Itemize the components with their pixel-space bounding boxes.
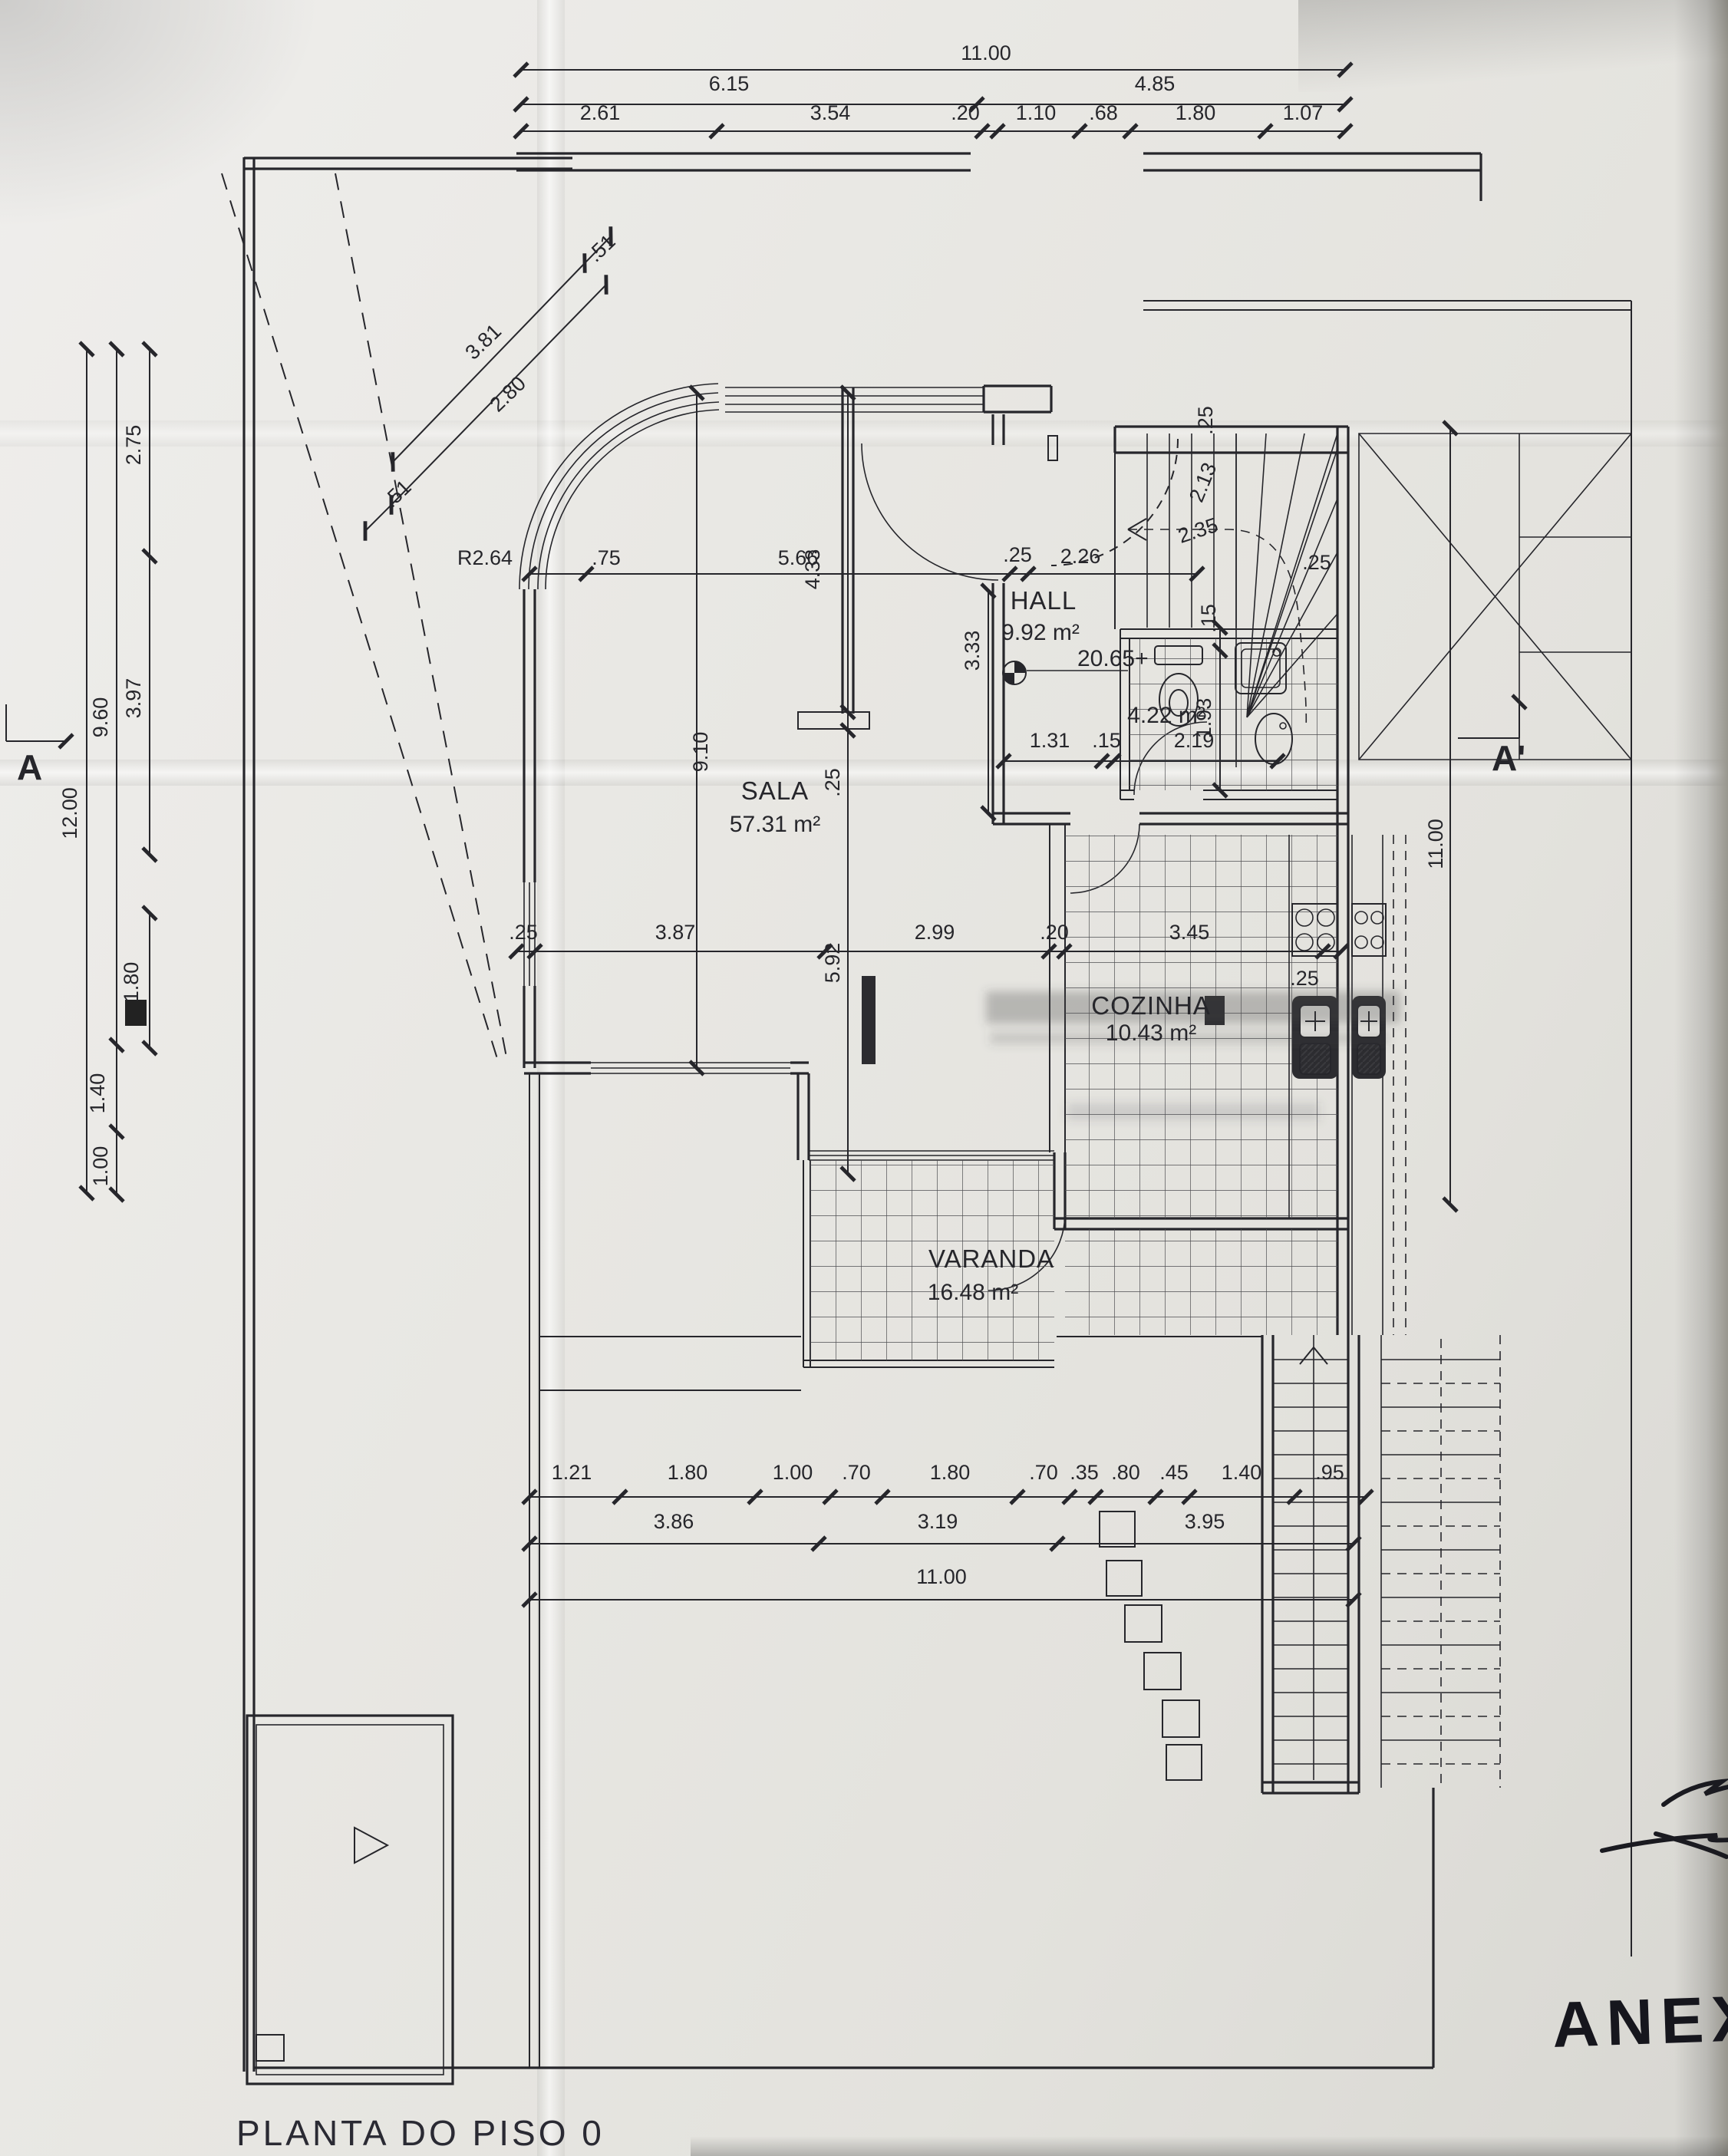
section-marker-a: A [17,747,42,787]
stepping-stones [1100,1512,1202,1780]
outdoor-cooktop-icon [1352,904,1386,956]
dim-label: .25 [1290,967,1319,990]
signature-scribble [1602,1782,1728,1857]
dim-label: 3.87 [655,921,696,944]
dim-label: .20 [1040,921,1069,944]
dim-label: .25 [1003,543,1032,566]
dim-label: 1.31 [1030,729,1070,752]
dim-label: .70 [842,1461,871,1484]
dim-label: .51 [379,476,416,513]
room-name-hall: HALL [1011,586,1077,615]
dim-label: .25 [1194,406,1217,435]
dim-label: .95 [1315,1461,1344,1484]
dim-label: 3.19 [918,1510,958,1533]
room-name-sala: SALA [741,776,809,805]
dim-label: 1.10 [1016,101,1057,124]
room-area-hall: 9.92 m² [1001,620,1080,645]
dim-label: 9.60 [89,697,112,738]
dim-label: 1.80 [120,962,143,1003]
room-area-sala: 57.31 m² [730,812,820,837]
room-name-cozinha: COZINHA [1091,991,1211,1020]
smudged-dimension-blob [125,1000,147,1026]
dim-label: 1.40 [1222,1461,1262,1484]
dim-label: .68 [1089,101,1118,124]
dim-label: 1.80 [930,1461,971,1484]
dim-label: .15 [1197,604,1220,633]
exterior-stairs [1262,1335,1500,1793]
dim-label: 1.00 [89,1146,112,1187]
dashed-projection-lines [222,173,508,1065]
dim-label: .25 [509,921,538,944]
garage-door-marker [355,1828,387,1863]
dim-label: .75 [592,546,621,569]
dim-label: 3.95 [1185,1510,1225,1533]
dim-label: 3.81 [460,319,506,364]
dim-label: 1.21 [552,1461,592,1484]
room-area-bath: 4.22 m² [1127,703,1205,728]
dim-label: 12.00 [58,787,81,839]
dim-label: 2.75 [122,425,145,466]
dim-label: .51 [583,230,620,267]
dim-label: 5.92 [821,943,844,984]
level-value: 20.65+ [1077,646,1149,671]
dim-label: 2.80 [485,371,530,416]
back-patio-tiles [1065,1229,1337,1335]
dim-label: 3.45 [1169,921,1210,944]
dim-label: .80 [1111,1461,1140,1484]
dim-label: R2.64 [457,546,513,569]
dim-label: 11.00 [961,41,1011,64]
dim-label: 1.07 [1283,101,1324,124]
dim-label: 3.86 [654,1510,694,1533]
dim-label: .35 [1070,1461,1099,1484]
dim-label: 4.85 [1135,72,1176,95]
dim-label: 2.26 [1060,545,1101,568]
dim-label: 3.97 [122,678,145,719]
dim-label: .70 [1029,1461,1058,1484]
dim-label: .45 [1159,1461,1189,1484]
handwritten-anexo: ANEXO [1551,1980,1728,2061]
dim-label: 2.99 [915,921,955,944]
dim-label: 11.00 [916,1565,967,1588]
dim-label: 6.15 [709,72,750,95]
drawing-title: PLANTA DO PISO 0 [236,2113,605,2153]
dim-label: .15 [1092,729,1121,752]
dim-label: 2.61 [580,101,621,124]
dim-label: 11.00 [1424,819,1447,869]
dim-label: 1.40 [86,1073,109,1114]
room-area-cozinha: 10.43 m² [1106,1020,1196,1046]
dim-label: 3.54 [810,101,851,124]
dim-label: .20 [951,101,980,124]
dim-label: 3.33 [961,631,984,671]
room-name-varanda: VARANDA [928,1244,1054,1273]
section-marker-a-prime: A' [1492,738,1525,778]
garage [247,1716,453,2084]
dim-label: .25 [1302,551,1331,574]
dim-label: 9.10 [689,732,712,773]
dim-label: .25 [821,768,844,797]
dim-label: 4.33 [801,549,824,590]
room-area-varanda: 16.48 m² [928,1280,1018,1305]
floor-plan-drawing: 11.00 6.15 4.85 2.61 3.54 .20 1.10 .68 1… [0,0,1728,2156]
dim-label: 2.13 [1185,460,1222,506]
dim-label: 1.80 [668,1461,708,1484]
dim-label: 1.00 [773,1461,813,1484]
dim-label: 1.80 [1176,101,1216,124]
annex-block [1359,434,1631,760]
